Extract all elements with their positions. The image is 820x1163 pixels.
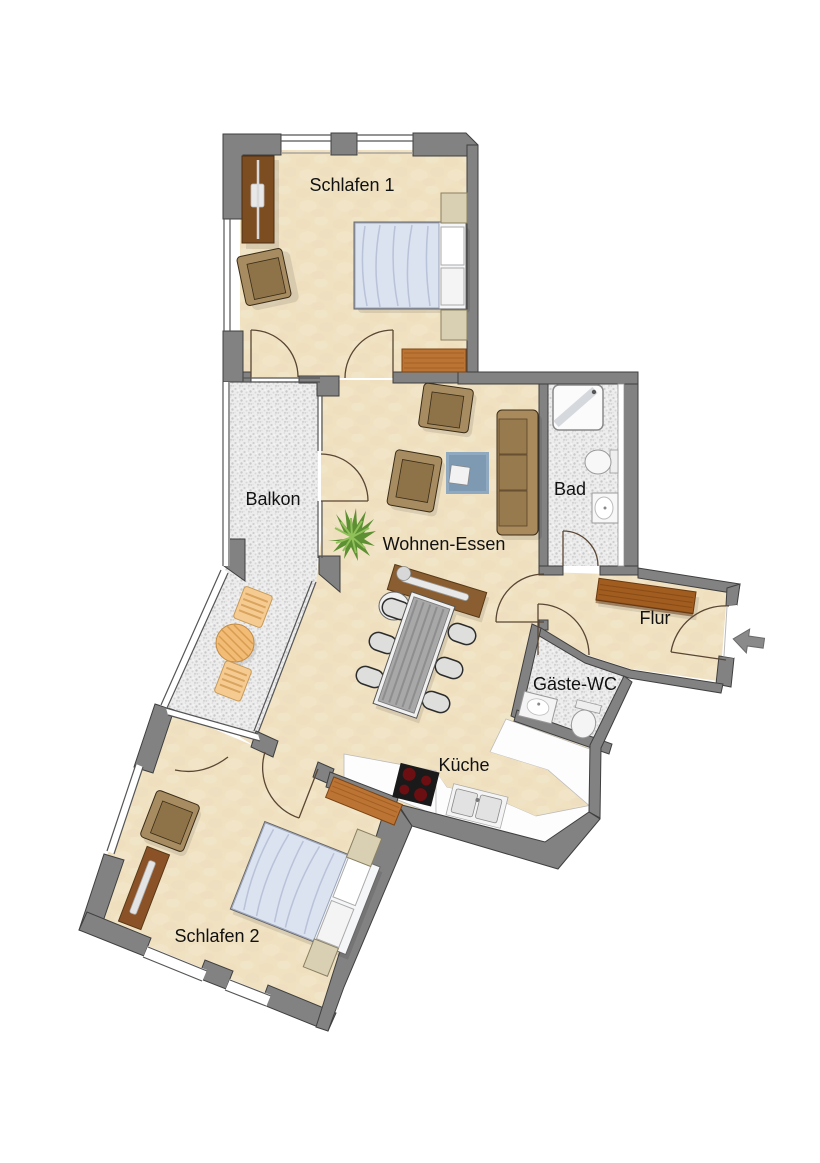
svg-text:Gäste-WC: Gäste-WC: [533, 674, 617, 694]
svg-text:Wohnen-Essen: Wohnen-Essen: [383, 534, 506, 554]
svg-text:Balkon: Balkon: [245, 489, 300, 509]
svg-text:Küche: Küche: [438, 755, 489, 775]
svg-text:Flur: Flur: [640, 608, 671, 628]
svg-text:Bad: Bad: [554, 479, 586, 499]
svg-text:Schlafen 2: Schlafen 2: [174, 926, 259, 946]
svg-text:Schlafen 1: Schlafen 1: [309, 175, 394, 195]
